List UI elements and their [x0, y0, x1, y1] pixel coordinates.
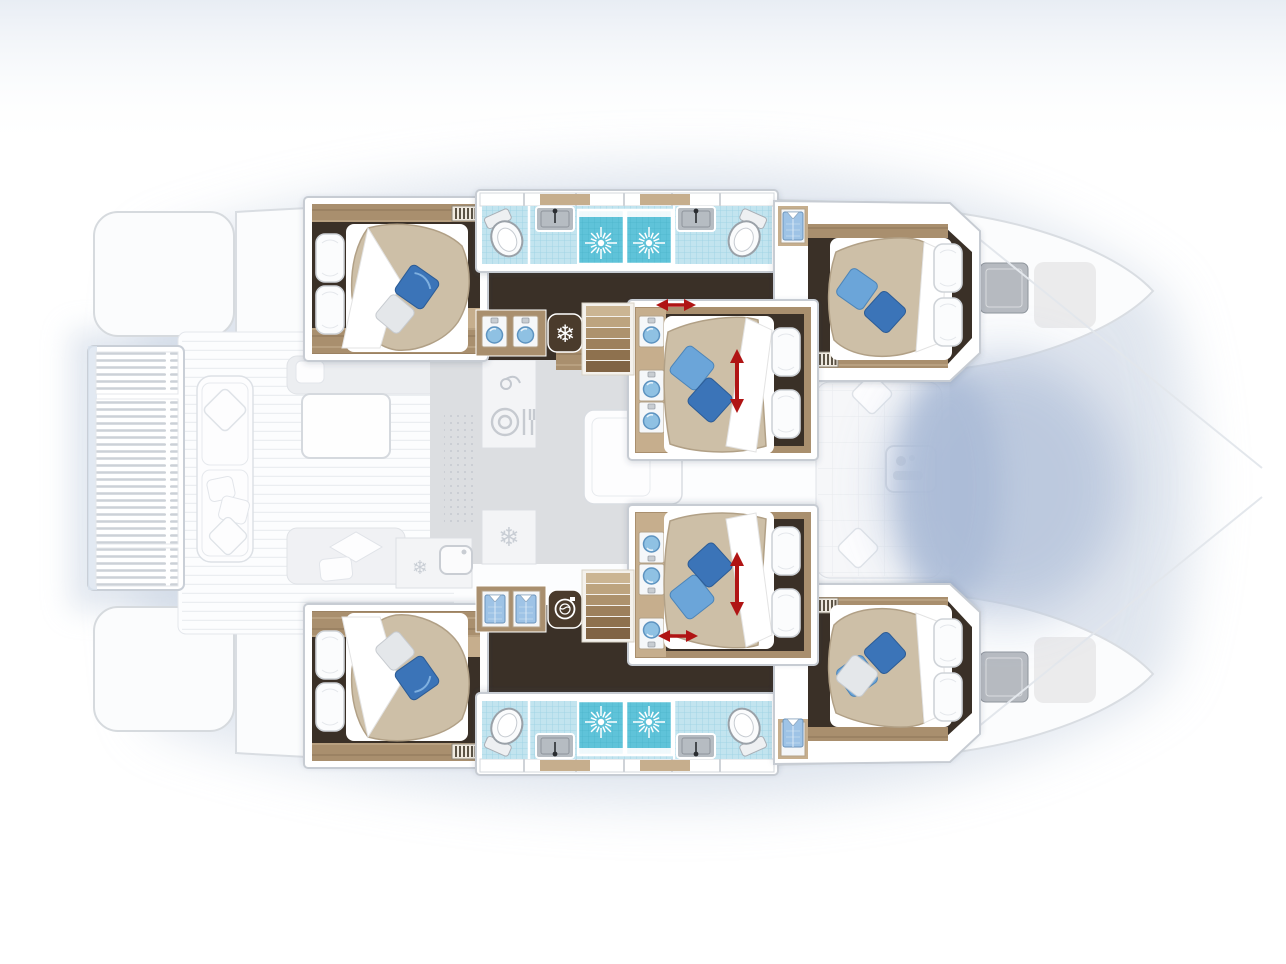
port-aft-cabin [304, 197, 488, 361]
fridge-snowflake-icon: ❄ [498, 523, 520, 553]
bow-sunpad-port [1034, 262, 1096, 328]
center-cabin-starboard-side [628, 505, 818, 665]
deck-hatch-port [980, 263, 1028, 313]
top-tint [0, 0, 1286, 150]
swim-platform [88, 346, 184, 590]
sink-icon [440, 546, 472, 574]
starboard-aft-cabin [304, 604, 488, 768]
port-staircase [582, 303, 634, 375]
svg-text:❄: ❄ [555, 320, 575, 348]
washing-machine-tile [548, 590, 582, 628]
cockpit-table [302, 394, 390, 458]
floor-plan-stage: ❄ ❄ [0, 0, 1286, 964]
deck-hatch-starboard [980, 652, 1028, 702]
catamaran-floor-plan: ❄ ❄ [0, 0, 1286, 964]
starboard-staircase [582, 570, 634, 642]
center-cabin-port-side [628, 300, 818, 460]
dotted-mat [444, 414, 478, 526]
stern-platform-port [94, 212, 234, 336]
bow-sunpad-starboard [1034, 637, 1096, 703]
port-bathrooms [476, 190, 778, 272]
port-wardrobe-shirt [783, 212, 803, 240]
snowflake-icon: ❄ [412, 557, 428, 579]
freezer-snowflake-tile: ❄ [548, 314, 582, 352]
starboard-bathrooms [476, 693, 778, 775]
trampoline-area [887, 359, 1123, 615]
starboard-wardrobe-shirt [783, 719, 803, 747]
